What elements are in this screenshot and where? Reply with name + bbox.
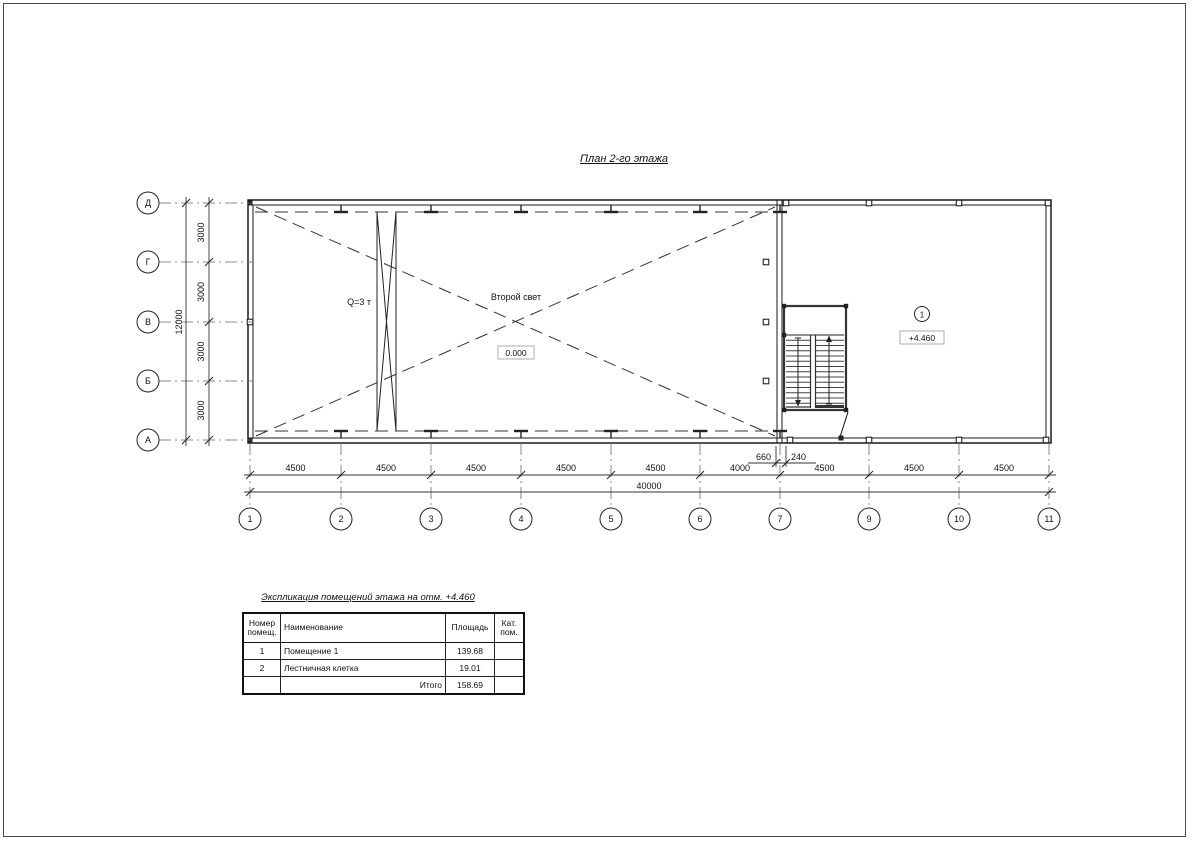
col-segment-dim-label: 4000 bbox=[730, 463, 750, 473]
grid-row-label: Д bbox=[145, 198, 151, 208]
door-swing bbox=[840, 412, 848, 437]
schedule-header: Номер помещ. Наименование Площадь Кат. п… bbox=[243, 613, 524, 643]
outer-wall-inner bbox=[253, 205, 1046, 438]
col-total-label: 40000 bbox=[636, 481, 661, 491]
stair-wall-node bbox=[844, 408, 848, 412]
cell-area: 139.68 bbox=[446, 643, 495, 660]
row-segment-dim-label: 3000 bbox=[196, 341, 206, 361]
outer-wall bbox=[248, 200, 1051, 443]
cell-cat bbox=[495, 643, 525, 660]
grid-row-label: Г bbox=[146, 257, 151, 267]
cell-name: Итого bbox=[281, 677, 446, 695]
grid-col-label: 1 bbox=[247, 514, 252, 524]
row-segment-dim-label: 3000 bbox=[196, 222, 206, 242]
cell-cat bbox=[495, 660, 525, 677]
row-segment-dim-label: 3000 bbox=[196, 400, 206, 420]
table-row: 2Лестничная клетка19.01 bbox=[243, 660, 524, 677]
stair-wall-node bbox=[844, 304, 848, 308]
stair-up-arrow-icon bbox=[826, 336, 832, 343]
table-row: Итого158.69 bbox=[243, 677, 524, 695]
void-label: Второй свет bbox=[491, 292, 541, 302]
col-header-number: Номер помещ. bbox=[243, 613, 281, 643]
column-square-filled bbox=[839, 436, 844, 441]
grid-col-label: 2 bbox=[338, 514, 343, 524]
level-zero-label: 0.000 bbox=[505, 348, 527, 358]
detail-dim-left: 660 bbox=[756, 452, 771, 462]
cell-area: 158.69 bbox=[446, 677, 495, 695]
stair-wall-node bbox=[782, 408, 786, 412]
cell-area: 19.01 bbox=[446, 660, 495, 677]
cell-name: Помещение 1 bbox=[281, 643, 446, 660]
column-square bbox=[763, 378, 769, 384]
detail-dim-right: 240 bbox=[791, 452, 806, 462]
column-square bbox=[866, 437, 872, 443]
cell-name: Лестничная клетка bbox=[281, 660, 446, 677]
grid-col-label: 6 bbox=[697, 514, 702, 524]
col-segment-dim-label: 4500 bbox=[994, 463, 1014, 473]
grid-col-label: 10 bbox=[954, 514, 964, 524]
room-schedule: Номер помещ. Наименование Площадь Кат. п… bbox=[242, 612, 525, 695]
staircase-group bbox=[782, 304, 848, 437]
cell-cat bbox=[495, 677, 525, 695]
row-segment-dim-label: 3000 bbox=[196, 282, 206, 302]
grid-col-label: 7 bbox=[777, 514, 782, 524]
column-square bbox=[787, 437, 793, 443]
col-segment-dim-label: 4500 bbox=[904, 463, 924, 473]
column-square bbox=[763, 259, 769, 265]
cell-num bbox=[243, 677, 281, 695]
col-header-name: Наименование bbox=[281, 613, 446, 643]
grid-col-label: 5 bbox=[608, 514, 613, 524]
row-total-label: 12000 bbox=[174, 309, 184, 334]
stair-wall-node bbox=[782, 304, 786, 308]
cell-num: 2 bbox=[243, 660, 281, 677]
room-tag-label: 1 bbox=[920, 311, 925, 320]
col-header-category: Кат. пом. bbox=[495, 613, 525, 643]
column-square bbox=[956, 200, 962, 206]
grid-col-label: 3 bbox=[428, 514, 433, 524]
grid-row-label: Б bbox=[145, 376, 151, 386]
grid-row-label: В bbox=[145, 317, 151, 327]
column-square bbox=[763, 319, 769, 325]
table-row: 1Помещение 1139.68 bbox=[243, 643, 524, 660]
col-segment-dim-label: 4500 bbox=[645, 463, 665, 473]
void-opening-group bbox=[255, 207, 775, 436]
drawing-sheet: План 2-го этажа ДГВБА3000300030003000 12… bbox=[0, 0, 1191, 842]
stair-wall-node bbox=[782, 333, 786, 337]
crane-group bbox=[377, 212, 396, 431]
grid-rows-group: ДГВБА3000300030003000 bbox=[137, 192, 253, 451]
room-level-label: +4.460 bbox=[909, 333, 936, 343]
grid-col-label: 11 bbox=[1044, 514, 1053, 524]
walls-group bbox=[248, 200, 1051, 443]
col-header-area: Площадь bbox=[446, 613, 495, 643]
col-segment-dim-label: 4500 bbox=[556, 463, 576, 473]
schedule-table: Номер помещ. Наименование Площадь Кат. п… bbox=[242, 612, 525, 695]
column-square bbox=[1043, 437, 1049, 443]
cell-num: 1 bbox=[243, 643, 281, 660]
col-segment-dim-label: 4500 bbox=[466, 463, 486, 473]
col-segment-dim-label: 4500 bbox=[814, 463, 834, 473]
floor-plan-canvas: ДГВБА3000300030003000 123456791011450045… bbox=[0, 0, 1191, 842]
columns-group bbox=[247, 200, 1051, 443]
column-square bbox=[783, 200, 789, 206]
schedule-title: Экспликация помещений этажа на отм. +4.4… bbox=[242, 592, 494, 603]
grid-col-label: 9 bbox=[866, 514, 871, 524]
grid-row-label: А bbox=[145, 435, 151, 445]
column-square bbox=[866, 200, 872, 206]
col-segment-dim-label: 4500 bbox=[285, 463, 305, 473]
crane-capacity-label: Q=3 т bbox=[347, 297, 371, 307]
grid-col-label: 4 bbox=[518, 514, 523, 524]
column-square bbox=[1045, 200, 1051, 206]
column-square bbox=[956, 437, 962, 443]
col-segment-dim-label: 4500 bbox=[376, 463, 396, 473]
